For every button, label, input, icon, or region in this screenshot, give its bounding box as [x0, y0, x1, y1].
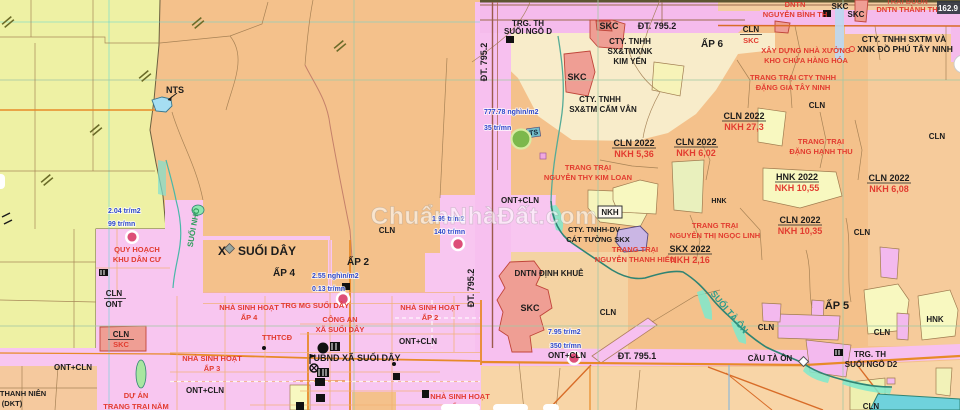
svg-text:NKH 27,3: NKH 27,3: [724, 122, 764, 132]
svg-text:CLN 2022: CLN 2022: [613, 138, 654, 148]
svg-text:CLN: CLN: [874, 328, 891, 337]
svg-text:CLN 2022: CLN 2022: [723, 111, 764, 121]
svg-text:ĐT. 795.1: ĐT. 795.1: [618, 351, 657, 361]
svg-text:140 tr/mn: 140 tr/mn: [434, 229, 465, 236]
svg-text:0.13 tr/mn: 0.13 tr/mn: [312, 286, 345, 293]
svg-text:NKH 2,16: NKH 2,16: [670, 255, 710, 265]
svg-text:CTY. TNHH SXTM VÀ: CTY. TNHH SXTM VÀ: [862, 34, 947, 44]
svg-text:CLN 2022: CLN 2022: [779, 215, 820, 225]
svg-text:NKH 6,02: NKH 6,02: [676, 148, 716, 158]
svg-text:CTY. TNHH: CTY. TNHH: [609, 37, 651, 46]
svg-text:SKC: SKC: [599, 21, 619, 31]
svg-text:35 tr/mn: 35 tr/mn: [484, 125, 511, 132]
svg-text:NKH 6,08: NKH 6,08: [869, 184, 909, 194]
svg-text:HNK: HNK: [711, 198, 726, 205]
svg-text:ĐT. 795.2: ĐT. 795.2: [466, 269, 476, 308]
svg-text:CLN: CLN: [809, 101, 826, 110]
svg-text:SUỐI NGÔ D: SUỐI NGÔ D: [504, 26, 552, 36]
svg-text:THANH NIÊN: THANH NIÊN: [0, 389, 46, 398]
svg-text:TRG MG SUỐI DÂY: TRG MG SUỐI DÂY: [281, 300, 349, 310]
svg-text:ONT: ONT: [106, 300, 123, 309]
svg-text:CTY. TNHH: CTY. TNHH: [579, 95, 621, 104]
svg-text:TRANG TRẠI: TRANG TRẠI: [798, 137, 844, 146]
svg-text:NHÀ SINH HOẠT: NHÀ SINH HOẠT: [182, 354, 242, 363]
svg-text:NHÀ SINH HOẠT: NHÀ SINH HOẠT: [219, 303, 279, 312]
svg-text:ONT+CLN: ONT+CLN: [548, 351, 586, 360]
svg-text:NGUYỄN THANH HIẾU: NGUYỄN THANH HIẾU: [595, 254, 675, 264]
svg-text:SKX 2022: SKX 2022: [669, 244, 710, 254]
svg-text:ẤP 3: ẤP 3: [204, 363, 221, 373]
svg-text:NHÀ SINH HOẠT: NHÀ SINH HOẠT: [400, 303, 460, 312]
svg-text:TRG. TH: TRG. TH: [854, 350, 886, 359]
svg-text:ONT+CLN: ONT+CLN: [399, 337, 437, 346]
svg-text:ẤP 2: ẤP 2: [347, 255, 369, 268]
svg-text:TRANG TRẠI: TRANG TRẠI: [692, 221, 738, 230]
svg-text:CLN: CLN: [863, 402, 880, 410]
svg-text:(DKT): (DKT): [2, 399, 23, 408]
svg-text:CLN: CLN: [113, 330, 130, 339]
svg-text:ẤP 6: ẤP 6: [701, 37, 723, 50]
svg-text:777.78 nghìn/m2: 777.78 nghìn/m2: [484, 109, 539, 116]
svg-text:CLN 2022: CLN 2022: [675, 137, 716, 147]
svg-text:TS: TS: [529, 129, 539, 137]
svg-text:ẤP 4: ẤP 4: [241, 312, 258, 322]
svg-text:HNK: HNK: [926, 315, 944, 324]
svg-text:99 tr/mn: 99 tr/mn: [108, 221, 135, 228]
svg-text:NGUYỄN THỊ NGỌC LINH: NGUYỄN THỊ NGỌC LINH: [670, 231, 760, 240]
svg-text:350 tr/mn: 350 tr/mn: [550, 343, 581, 350]
svg-text:XÃ SUỐI DÂY: XÃ SUỐI DÂY: [316, 324, 365, 334]
svg-text:ĐT. 795.2: ĐT. 795.2: [479, 43, 489, 82]
svg-text:XÂY DỰNG NHÀ XƯỞNG: XÂY DỰNG NHÀ XƯỞNG: [761, 46, 851, 55]
svg-text:DỰ ÁN: DỰ ÁN: [124, 391, 149, 400]
svg-text:ẤP 5: ẤP 5: [825, 299, 849, 312]
svg-text:SX&TMXNK: SX&TMXNK: [608, 47, 653, 56]
svg-text:DNTN: DNTN: [785, 0, 806, 9]
svg-text:2.04 tr/m2: 2.04 tr/m2: [108, 208, 141, 215]
svg-text:SUỐI NGÔ D2: SUỐI NGÔ D2: [845, 359, 898, 369]
svg-text:SKC: SKC: [832, 2, 849, 11]
svg-text:2.55 nghìn/m2: 2.55 nghìn/m2: [312, 273, 359, 280]
svg-text:DNTN THÀNH TH: DNTN THÀNH TH: [876, 5, 937, 14]
svg-text:KHU DÂN CƯ: KHU DÂN CƯ: [113, 255, 162, 264]
svg-text:SKC: SKC: [567, 72, 587, 82]
svg-text:SKC: SKC: [743, 36, 759, 45]
svg-text:TRANG TRẠI: TRANG TRẠI: [565, 163, 611, 172]
svg-text:CÁT TƯỜNG SKX: CÁT TƯỜNG SKX: [566, 235, 629, 244]
svg-text:ĐẶNG GIA TÂY NINH: ĐẶNG GIA TÂY NINH: [756, 83, 831, 92]
svg-text:NGUYỄN BÌNH TH: NGUYỄN BÌNH TH: [763, 10, 828, 19]
svg-text:SUỐI DÂY: SUỐI DÂY: [238, 243, 296, 258]
svg-text:CLN: CLN: [929, 132, 946, 141]
svg-text:CÔNG AN: CÔNG AN: [322, 315, 357, 324]
svg-text:TTHTCĐ: TTHTCĐ: [262, 333, 293, 342]
svg-text:CLN: CLN: [854, 228, 871, 237]
svg-text:NKH: NKH: [601, 208, 619, 217]
svg-text:NKH 10,55: NKH 10,55: [775, 183, 820, 193]
svg-text:SKC: SKC: [520, 303, 540, 313]
svg-text:ONT+CLN: ONT+CLN: [54, 363, 92, 372]
svg-text:UBND XÃ SUỐI DÂY: UBND XÃ SUỐI DÂY: [313, 352, 400, 363]
svg-text:NHÀ SINH HOẠT: NHÀ SINH HOẠT: [430, 392, 490, 401]
svg-text:XNK ĐỒ PHÚ TÂY NINH: XNK ĐỒ PHÚ TÂY NINH: [857, 43, 953, 54]
svg-text:TRANG TRẠI: TRANG TRẠI: [612, 245, 658, 254]
svg-text:ĐT. 795.2: ĐT. 795.2: [638, 21, 677, 31]
svg-text:ONT+CLN: ONT+CLN: [186, 386, 224, 395]
svg-text:QUY HOẠCH: QUY HOẠCH: [114, 245, 160, 254]
svg-text:CẦU TÀ ÔN: CẦU TÀ ÔN: [748, 353, 793, 363]
svg-text:CLN: CLN: [743, 25, 760, 34]
svg-text:TRANG TRẠI NĂM: TRANG TRẠI NĂM: [103, 402, 168, 410]
svg-text:ẤP 2: ẤP 2: [422, 312, 439, 322]
svg-text:162.9: 162.9: [938, 4, 959, 13]
svg-text:SKC: SKC: [848, 10, 865, 19]
svg-text:7.95 tr/m2: 7.95 tr/m2: [548, 329, 581, 336]
svg-text:NKH 5,36: NKH 5,36: [614, 149, 654, 159]
svg-text:SKC: SKC: [113, 340, 129, 349]
svg-text:CLN: CLN: [106, 289, 123, 298]
svg-text:NTS: NTS: [166, 85, 184, 95]
svg-text:NGUYỄN THY KIM LOAN: NGUYỄN THY KIM LOAN: [544, 173, 632, 182]
svg-text:CLN: CLN: [758, 323, 775, 332]
svg-text:NKH 10,35: NKH 10,35: [778, 226, 823, 236]
svg-text:ChuẩnNhàĐất.com: ChuẩnNhàĐất.com: [371, 203, 598, 230]
svg-text:ẤP 4: ẤP 4: [273, 266, 295, 279]
svg-text:CLN: CLN: [600, 308, 617, 317]
svg-text:KHO CHỨA HÀNG HÓA: KHO CHỨA HÀNG HÓA: [764, 56, 848, 65]
svg-text:ĐẶNG HẠNH THU: ĐẶNG HẠNH THU: [789, 147, 852, 156]
svg-text:X: X: [218, 244, 226, 258]
svg-text:TRANG TRẠI CTY TNHH: TRANG TRẠI CTY TNHH: [750, 73, 836, 82]
svg-text:SX&TM CẨM VÂN: SX&TM CẨM VÂN: [569, 105, 637, 114]
svg-text:DNTN ĐỊNH KHUÊ: DNTN ĐỊNH KHUÊ: [515, 269, 585, 278]
svg-text:KIM YẾN: KIM YẾN: [613, 56, 646, 66]
svg-text:CLN 2022: CLN 2022: [868, 173, 909, 183]
svg-text:HNK 2022: HNK 2022: [776, 172, 818, 182]
